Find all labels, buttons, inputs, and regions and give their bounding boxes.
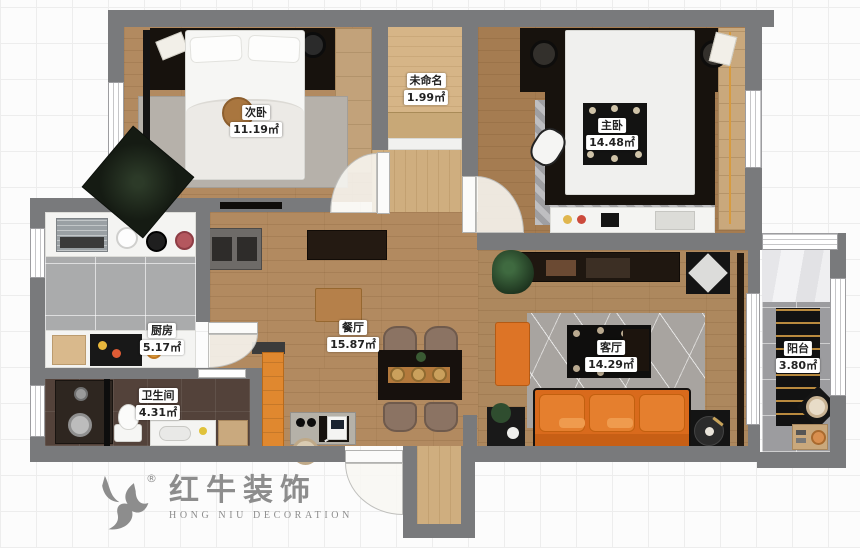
- closet-shelf-white: [388, 138, 462, 150]
- dish: [175, 231, 194, 250]
- dresser-gold-decor: [563, 215, 572, 224]
- bathroom-sliding-door: [198, 369, 246, 378]
- shower-drain: [68, 413, 92, 437]
- washer-controls: [796, 438, 806, 443]
- cutting-board: [52, 335, 86, 365]
- ceiling-lamp-bulb: [611, 155, 618, 162]
- closet-shelf: [388, 112, 462, 138]
- console-books: [546, 260, 576, 276]
- plate: [432, 367, 447, 382]
- door-leaf-second-bedroom: [377, 152, 390, 214]
- sideboard-drawer: [237, 237, 257, 261]
- curtain-panel: [737, 253, 744, 453]
- ceiling-lamp-bulb: [589, 107, 596, 114]
- washer-controls: [796, 430, 806, 435]
- room-label-bathroom: 卫生间 4.31㎡: [136, 388, 180, 420]
- lamp-bulb: [573, 365, 580, 372]
- window-master-east: [745, 90, 762, 168]
- shower-glass-partition: [104, 378, 110, 446]
- wall-bedroom-south: [30, 198, 332, 212]
- bathroom-cabinet: [218, 420, 248, 446]
- wall-north: [120, 10, 774, 27]
- ceiling-lamp-bulb: [611, 105, 618, 112]
- washer-door: [811, 430, 826, 445]
- plate: [411, 367, 426, 382]
- bathroom-vanity: [150, 420, 216, 446]
- plant: [492, 250, 534, 294]
- dining-chair: [383, 402, 417, 432]
- ceiling-lamp-bulb: [635, 151, 642, 158]
- washing-machine: [792, 424, 828, 450]
- room-name: 厨房: [148, 323, 176, 338]
- room-label-dining: 餐厅 15.87㎡: [327, 320, 379, 352]
- bottle: [307, 418, 316, 427]
- room-label-unnamed: 未命名 1.99㎡: [404, 73, 448, 105]
- wall-south-bathroom: [30, 446, 240, 462]
- cup: [507, 427, 519, 439]
- wall-tv: [220, 202, 282, 209]
- brand-name-cn: 红牛装饰: [169, 474, 353, 508]
- dresser-decor: [601, 213, 619, 227]
- room-area: 14.48㎡: [586, 135, 638, 150]
- wall-stub-living: [463, 415, 477, 446]
- registered-mark: ®: [146, 474, 157, 484]
- small-appliance: [327, 416, 347, 440]
- balcony-sliding-door: [746, 293, 760, 425]
- sideboard: [205, 228, 262, 270]
- room-area: 4.31㎡: [136, 405, 180, 420]
- bedside-lamp: [530, 40, 558, 68]
- side-table-left: [487, 407, 525, 450]
- food-item: [98, 341, 107, 350]
- plant-small: [491, 403, 511, 423]
- room-area: 15.87㎡: [327, 337, 379, 352]
- room-area: 5.17㎡: [140, 340, 184, 355]
- room-area: 11.19㎡: [230, 122, 282, 137]
- room-name: 客厅: [597, 340, 625, 355]
- sofa-pillow: [607, 418, 633, 428]
- shower-head: [74, 387, 88, 401]
- brand-name-en: HONG NIU DECORATION: [169, 510, 353, 521]
- pillow: [189, 35, 242, 64]
- brand-logo: ® 红牛装饰 HONG NIU DECORATION: [94, 474, 353, 532]
- wall-balcony-north-stub: [748, 233, 760, 293]
- table-plant: [416, 352, 426, 362]
- entry-door-leaf: [345, 450, 403, 463]
- range-hood-vent: [60, 237, 104, 248]
- room-name: 阳台: [784, 341, 812, 356]
- door-leaf-kitchen: [208, 322, 258, 334]
- dresser-red-decor: [577, 215, 586, 224]
- wall-balcony-south-stub: [748, 425, 760, 452]
- bottle: [296, 418, 305, 427]
- dresser: [550, 207, 715, 233]
- frying-pan: [146, 231, 167, 252]
- wall-bathroom-east: [250, 368, 262, 446]
- room-label-living: 客厅 14.29㎡: [585, 340, 637, 372]
- wall-south-living: [475, 446, 757, 462]
- room-name: 次卧: [242, 105, 270, 120]
- entry-door-arc: [345, 463, 403, 515]
- appliance-screen: [331, 420, 344, 429]
- dresser-tray: [655, 211, 695, 230]
- wall-master-living: [477, 233, 762, 250]
- bull-icon: [94, 474, 152, 532]
- window-bathroom-west: [30, 385, 45, 437]
- soap-dish: [199, 427, 207, 435]
- room-name: 餐厅: [339, 320, 367, 335]
- room-area: 3.80㎡: [776, 358, 820, 373]
- lamp-bulb: [573, 330, 580, 337]
- door-leaf-master: [462, 176, 476, 233]
- balcony-window-sill: [762, 250, 830, 302]
- room-label-master-bedroom: 主卧 14.48㎡: [586, 118, 638, 150]
- orange-ottoman: [495, 322, 530, 386]
- wash-basin: [806, 396, 828, 418]
- food-item: [112, 349, 121, 358]
- ceiling-lamp-bulb: [633, 107, 640, 114]
- ceiling-lamp-bulb: [587, 151, 594, 158]
- sofa-cushion: [639, 394, 685, 432]
- console-decor: [586, 258, 630, 278]
- wall-bedroom-closet: [372, 26, 388, 150]
- accent-mat: [686, 252, 730, 294]
- wall-hall-master: [462, 26, 478, 176]
- sink: [159, 426, 191, 441]
- wall-vestibule-east: [461, 446, 475, 538]
- window-balcony-north: [762, 233, 838, 250]
- plate: [390, 367, 405, 382]
- wall-kitchen-east: [196, 212, 210, 322]
- room-area: 14.29㎡: [585, 357, 637, 372]
- room-area: 1.99㎡: [404, 90, 448, 105]
- room-name: 卫生间: [138, 388, 177, 403]
- dining-table: [378, 350, 462, 400]
- room-label-balcony: 阳台 3.80㎡: [776, 341, 820, 373]
- room-name: 未命名: [406, 73, 445, 88]
- pillow: [247, 35, 300, 64]
- dining-chair: [424, 402, 458, 432]
- room-label-second-bedroom: 次卧 11.19㎡: [230, 105, 282, 137]
- wall-south-dining: [240, 446, 345, 462]
- dining-mat: [315, 288, 362, 322]
- window-balcony-east: [830, 278, 846, 396]
- room-label-kitchen: 厨房 5.17㎡: [140, 323, 184, 355]
- sideboard-drawer: [212, 237, 232, 261]
- lamp-bulb: [597, 327, 604, 334]
- window-kitchen-west: [30, 228, 45, 278]
- hall-cabinet: [307, 230, 387, 260]
- sofa-pillow: [559, 418, 585, 428]
- entry-vestibule-floor: [417, 446, 461, 526]
- diamond-decor: [688, 253, 728, 293]
- room-name: 主卧: [598, 118, 626, 133]
- vinyl-label: [705, 427, 714, 436]
- floorplan-canvas: 次卧 11.19㎡ 未命名 1.99㎡ 主卧 14.48㎡ 厨房 5.17㎡ 餐…: [0, 0, 860, 548]
